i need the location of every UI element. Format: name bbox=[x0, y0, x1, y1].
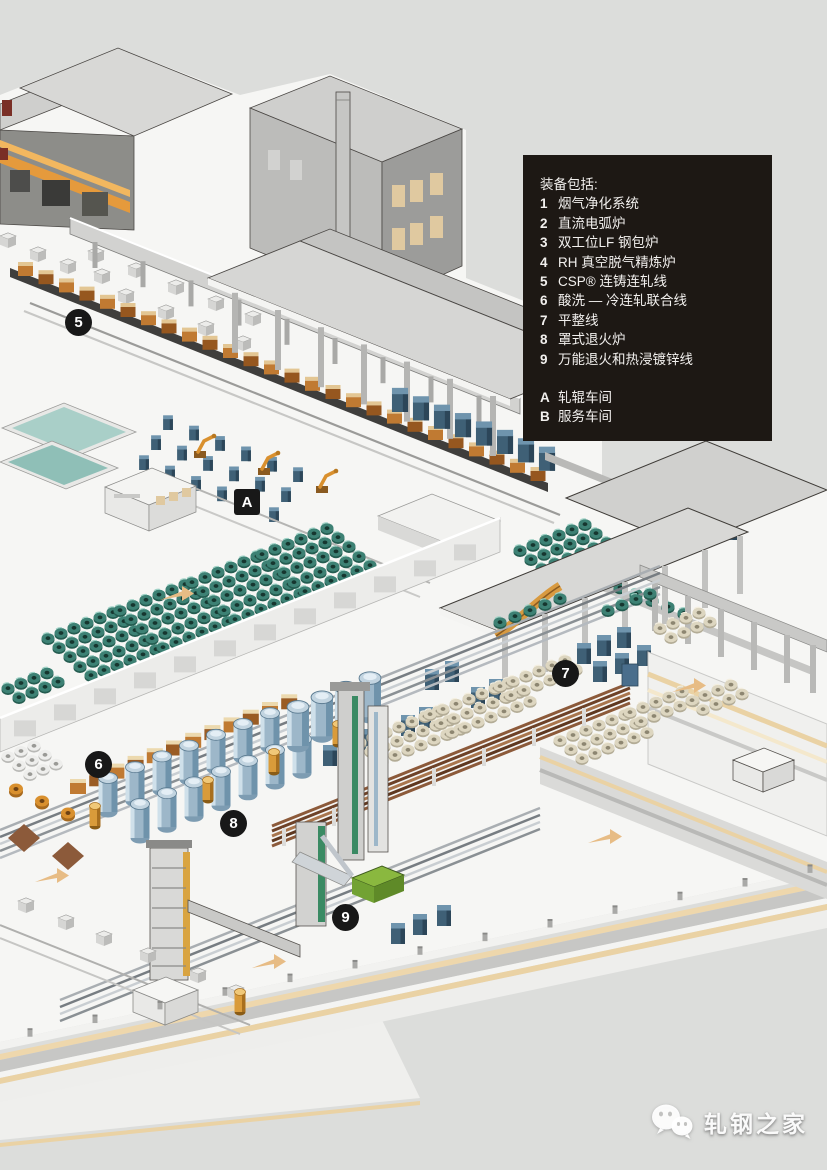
legend-item-label: 罩式退火炉 bbox=[558, 330, 626, 349]
legend-title: 装备包括: bbox=[540, 175, 762, 194]
legend-item: 6 酸洗 — 冷连轧联合线 bbox=[540, 291, 762, 310]
legend-item-key: 2 bbox=[540, 214, 558, 233]
legend-item-key: 3 bbox=[540, 233, 558, 252]
marker-7: 7 bbox=[552, 660, 579, 687]
legend-item-key: 5 bbox=[540, 272, 558, 291]
legend-item: 2 直流电弧炉 bbox=[540, 214, 762, 233]
legend-item-key: B bbox=[540, 407, 558, 426]
plant-layout-diagram: 装备包括: 1 烟气净化系统 2 直流电弧炉 3 双工位LF 钢包炉 4 RH … bbox=[0, 0, 827, 1170]
legend-item-label: 服务车间 bbox=[558, 407, 612, 426]
payoff-reel bbox=[35, 796, 49, 810]
legend-areas: A 轧辊车间 B 服务车间 bbox=[540, 388, 762, 427]
marker-9: 9 bbox=[332, 904, 359, 931]
legend-item: 8 罩式退火炉 bbox=[540, 330, 762, 349]
legend-item-label: 直流电弧炉 bbox=[558, 214, 626, 233]
legend-item-label: 万能退火和热浸镀锌线 bbox=[558, 350, 693, 369]
legend-item: 5 CSP® 连铸连轧线 bbox=[540, 272, 762, 291]
legend-panel: 装备包括: 1 烟气净化系统 2 直流电弧炉 3 双工位LF 钢包炉 4 RH … bbox=[523, 155, 772, 441]
legend-item-key: 8 bbox=[540, 330, 558, 349]
legend-item-key: 7 bbox=[540, 311, 558, 330]
legend-item-label: 双工位LF 钢包炉 bbox=[558, 233, 659, 252]
wechat-icon bbox=[650, 1102, 696, 1142]
payoff-reel bbox=[9, 784, 23, 798]
legend-item: 1 烟气净化系统 bbox=[540, 194, 762, 213]
marker-8: 8 bbox=[220, 810, 247, 837]
legend-item-key: 1 bbox=[540, 194, 558, 213]
legend-item-label: CSP® 连铸连轧线 bbox=[558, 272, 667, 291]
legend-item: 3 双工位LF 钢包炉 bbox=[540, 233, 762, 252]
legend-item-label: 平整线 bbox=[558, 311, 599, 330]
legend-item: A 轧辊车间 bbox=[540, 388, 762, 407]
marker-A: A bbox=[234, 489, 260, 515]
legend-items: 1 烟气净化系统 2 直流电弧炉 3 双工位LF 钢包炉 4 RH 真空脱气精炼… bbox=[540, 194, 762, 369]
legend-item-key: 9 bbox=[540, 350, 558, 369]
legend-item: B 服务车间 bbox=[540, 407, 762, 426]
legend-item: 4 RH 真空脱气精炼炉 bbox=[540, 253, 762, 272]
legend-item-key: A bbox=[540, 388, 558, 407]
legend-item-key: 4 bbox=[540, 253, 558, 272]
legend-item: 9 万能退火和热浸镀锌线 bbox=[540, 350, 762, 369]
legend-item-label: 轧辊车间 bbox=[558, 388, 612, 407]
watermark: 轧钢之家 bbox=[650, 1102, 808, 1142]
legend-item-label: 烟气净化系统 bbox=[558, 194, 639, 213]
payoff-reel bbox=[61, 808, 75, 822]
watermark-text: 轧钢之家 bbox=[704, 1105, 808, 1139]
legend-item-label: 酸洗 — 冷连轧联合线 bbox=[558, 291, 687, 310]
legend-item: 7 平整线 bbox=[540, 311, 762, 330]
marker-6: 6 bbox=[85, 751, 112, 778]
marker-5: 5 bbox=[65, 309, 92, 336]
legend-item-key: 6 bbox=[540, 291, 558, 310]
legend-item-label: RH 真空脱气精炼炉 bbox=[558, 253, 676, 272]
